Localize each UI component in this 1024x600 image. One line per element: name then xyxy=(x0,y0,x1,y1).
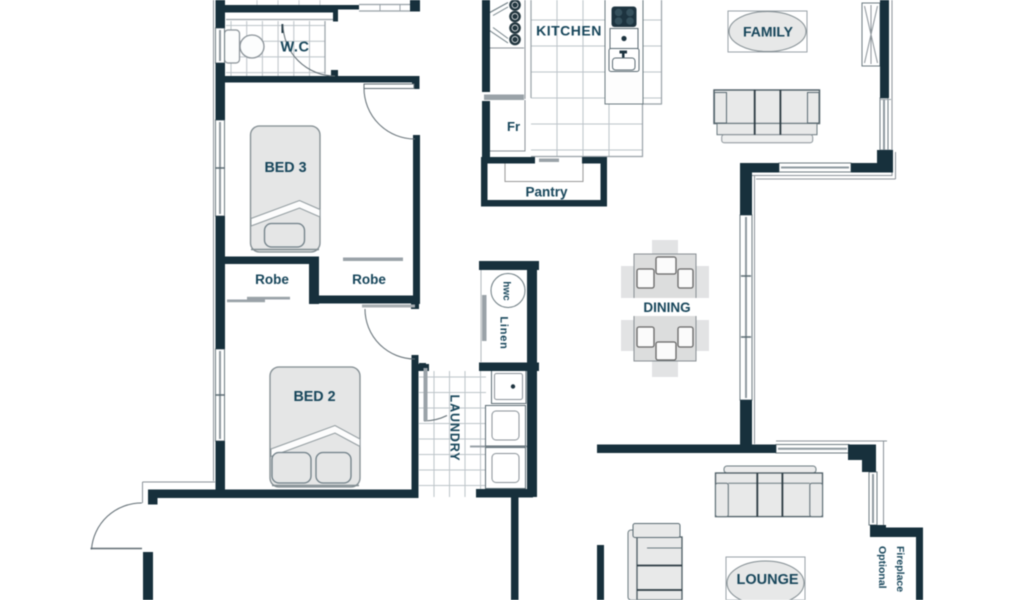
svg-text:Robe: Robe xyxy=(255,272,289,287)
svg-text:FAMILY: FAMILY xyxy=(743,24,794,40)
svg-text:W.C: W.C xyxy=(281,40,310,56)
svg-text:DINING: DINING xyxy=(643,300,690,315)
svg-text:Fireplace: Fireplace xyxy=(894,546,906,592)
svg-text:BED 3: BED 3 xyxy=(264,160,306,176)
svg-text:Fr: Fr xyxy=(507,119,520,134)
svg-text:Optional: Optional xyxy=(876,546,888,589)
svg-text:LOUNGE: LOUNGE xyxy=(736,572,798,588)
svg-text:BED 2: BED 2 xyxy=(293,389,335,405)
svg-text:hwc: hwc xyxy=(501,281,512,301)
svg-text:Pantry: Pantry xyxy=(525,185,568,200)
svg-text:KITCHEN: KITCHEN xyxy=(536,23,602,39)
svg-text:LAUNDRY: LAUNDRY xyxy=(448,395,462,462)
svg-text:Robe: Robe xyxy=(352,272,386,287)
svg-text:Linen: Linen xyxy=(498,316,510,349)
